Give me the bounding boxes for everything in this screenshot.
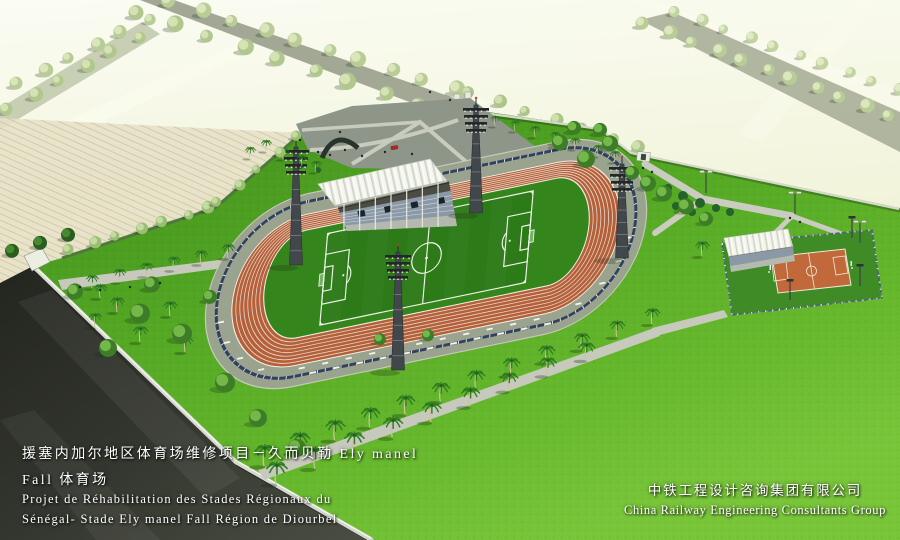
light-bar: [466, 129, 486, 132]
person: [651, 171, 653, 173]
lamp: [388, 271, 390, 273]
tree: [104, 46, 112, 54]
palm-shadow: [242, 158, 250, 160]
light-bar: [388, 276, 408, 279]
lamp: [386, 257, 388, 259]
palm-crown: [146, 264, 148, 266]
tree: [375, 334, 382, 341]
tree: [714, 44, 722, 52]
tree: [63, 245, 70, 252]
palm-crown: [616, 322, 619, 325]
palm-crown: [495, 117, 497, 119]
tree: [813, 82, 820, 89]
palm-shadow: [378, 437, 393, 441]
tree: [216, 374, 228, 386]
tree: [626, 167, 634, 175]
palm-crown: [508, 374, 511, 377]
tree: [416, 74, 424, 82]
palm-crown: [227, 245, 229, 247]
palm-crown: [119, 270, 121, 272]
palm-shadow: [508, 132, 516, 134]
palm-crown: [581, 334, 584, 337]
tree: [816, 58, 824, 66]
palm-crown: [266, 141, 268, 143]
lamp: [403, 257, 405, 259]
lamp: [470, 117, 472, 119]
tree: [137, 223, 144, 230]
tree: [30, 88, 39, 97]
basketball-hoop: [768, 271, 770, 273]
person: [642, 167, 644, 169]
palm-shadow: [258, 151, 266, 153]
tree: [351, 52, 361, 62]
company-name-zh: 中铁工程设计咨询集团有限公司: [600, 479, 900, 499]
tree: [270, 52, 279, 61]
tree: [311, 65, 319, 73]
light-bar: [463, 108, 489, 111]
palm-shadow: [90, 298, 101, 301]
lamp: [467, 131, 469, 133]
tree: [632, 141, 640, 149]
palm-crown: [585, 344, 588, 347]
tree: [578, 151, 589, 162]
tower-shadow: [594, 258, 624, 264]
lamp: [621, 183, 623, 185]
tree: [131, 305, 143, 317]
palm-crown: [302, 156, 304, 158]
tree: [62, 229, 70, 237]
lamp: [295, 173, 297, 175]
palm-crown: [547, 359, 550, 362]
goal: [529, 230, 534, 243]
lamp: [402, 271, 404, 273]
palm-crown: [651, 310, 654, 313]
lamp: [401, 278, 403, 280]
lamp: [392, 257, 394, 259]
tree: [114, 26, 122, 34]
lamp: [303, 173, 305, 175]
lamp: [397, 278, 399, 280]
tree: [664, 26, 673, 35]
lamp: [306, 152, 308, 154]
lamp: [611, 176, 613, 178]
beacon: [397, 244, 399, 246]
palm-shadow: [160, 316, 171, 319]
lamp: [480, 124, 482, 126]
lamp: [613, 190, 615, 192]
tree: [235, 180, 242, 187]
lamp: [286, 166, 288, 168]
palm-crown: [440, 384, 443, 387]
palm-shadow: [641, 324, 653, 327]
palm-crown: [169, 302, 171, 304]
lamp-head: [708, 171, 713, 173]
person: [159, 282, 161, 284]
lamp: [402, 264, 404, 266]
lamp: [610, 169, 612, 171]
lamp: [393, 278, 395, 280]
lamp: [629, 190, 631, 192]
tree: [92, 38, 100, 46]
tree: [747, 32, 754, 39]
lamp: [392, 264, 394, 266]
lamp: [406, 271, 408, 273]
palm-crown: [469, 389, 472, 392]
lamp-head: [789, 192, 794, 194]
palm-crown: [598, 146, 600, 148]
tree: [53, 76, 60, 83]
lamp: [397, 264, 399, 266]
tree: [494, 95, 502, 103]
lamp: [471, 131, 473, 133]
lamp: [465, 117, 467, 119]
person: [79, 286, 81, 288]
tree: [340, 74, 350, 84]
palm-shadow: [174, 352, 186, 355]
palm-shadow: [488, 127, 496, 129]
shrub: [695, 198, 705, 208]
palm-crown: [200, 251, 202, 253]
lamp: [616, 169, 618, 171]
light-bar: [387, 269, 409, 272]
tree: [568, 122, 576, 130]
palm-shadow: [534, 375, 548, 379]
tree: [145, 15, 152, 22]
tree: [135, 33, 142, 40]
palm-shadow: [137, 276, 147, 279]
person: [429, 91, 431, 93]
palm-shadow: [607, 162, 615, 164]
person: [449, 99, 451, 101]
goal: [319, 273, 324, 286]
palm-shadow: [570, 350, 583, 353]
tree: [100, 340, 111, 351]
tree: [129, 6, 138, 15]
tree: [381, 87, 389, 95]
palm-shadow: [83, 288, 93, 291]
lamp: [407, 264, 409, 266]
lamp: [466, 124, 468, 126]
lamp: [616, 176, 618, 178]
lamp: [290, 152, 292, 154]
palm-crown: [391, 419, 394, 422]
lamp: [285, 159, 287, 161]
tree: [833, 92, 840, 99]
tree: [764, 65, 771, 72]
person: [384, 151, 386, 153]
palm-crown: [139, 328, 142, 331]
palm-crown: [430, 404, 433, 407]
tree: [636, 18, 644, 26]
tree: [288, 34, 297, 43]
palm-crown: [510, 359, 513, 362]
palm-crown: [701, 242, 703, 244]
lamp: [389, 278, 391, 280]
tree: [861, 99, 870, 108]
lamp: [485, 117, 487, 119]
tree: [239, 40, 249, 50]
palm-crown: [94, 314, 96, 316]
light-bar: [386, 262, 410, 265]
light-bar: [612, 188, 632, 191]
lamp: [397, 257, 399, 259]
palm-shadow: [164, 270, 174, 273]
tree: [212, 198, 218, 204]
lamp: [630, 183, 632, 185]
tree: [68, 285, 78, 295]
light-bar: [465, 122, 487, 125]
palm-crown: [250, 148, 252, 150]
lamp: [480, 117, 482, 119]
tree: [111, 232, 117, 238]
tree: [846, 68, 852, 74]
tree: [734, 54, 742, 62]
company-name-en: China Railway Engineering Consultants Gr…: [600, 503, 900, 518]
person: [799, 221, 801, 223]
lamp: [405, 278, 407, 280]
tree: [252, 165, 257, 170]
palm-crown: [535, 127, 537, 129]
person: [361, 155, 363, 157]
tree: [450, 82, 460, 92]
palm-crown: [475, 372, 478, 375]
caption-line-fr1: Projet de Réhabilitation des Stades Régi…: [22, 492, 418, 507]
tree: [40, 64, 49, 73]
lamp: [393, 271, 395, 273]
person: [299, 139, 301, 141]
project-caption: 援塞内加尔地区体育场维修项目－久而贝勒 Ely manel Fall 体育场 P…: [22, 443, 418, 532]
tree: [679, 200, 689, 210]
stadium-aerial-rendering: 援塞内加尔地区体育场维修项目－久而贝勒 Ely manel Fall 体育场 P…: [0, 0, 900, 540]
lamp: [479, 131, 481, 133]
tree: [551, 114, 559, 122]
lamp: [295, 159, 297, 161]
lamp: [621, 169, 623, 171]
lamp: [295, 152, 297, 154]
palm-crown: [515, 122, 517, 124]
palm-shadow: [495, 391, 509, 395]
palm-crown: [116, 298, 118, 300]
tree: [783, 72, 792, 81]
lamp-head: [700, 171, 705, 173]
lamp: [291, 166, 293, 168]
lamp: [475, 124, 477, 126]
palm-shadow: [191, 264, 201, 267]
lamp-head: [854, 221, 859, 223]
tree: [553, 136, 563, 146]
tree: [719, 25, 725, 31]
tree: [275, 147, 282, 154]
person: [129, 286, 131, 288]
palm-shadow: [534, 363, 547, 366]
lamp: [475, 117, 477, 119]
tree: [423, 330, 430, 337]
tree: [686, 37, 693, 44]
lamp: [470, 110, 472, 112]
tree: [184, 211, 190, 217]
palm-shadow: [308, 172, 316, 174]
palm-shadow: [110, 282, 120, 285]
tree: [291, 131, 297, 137]
person: [339, 131, 341, 133]
palm-shadow: [605, 337, 617, 340]
tree: [0, 104, 8, 112]
person: [317, 151, 319, 153]
lamp: [299, 173, 301, 175]
palm-crown: [369, 409, 372, 412]
person: [411, 153, 413, 155]
lamp: [625, 190, 627, 192]
light-bar: [285, 164, 307, 167]
palm-shadow: [294, 166, 302, 168]
tree: [10, 78, 18, 86]
light-bar: [385, 255, 411, 258]
lamp: [397, 271, 399, 273]
tree: [700, 213, 708, 221]
basketball-hoop: [851, 267, 853, 269]
palm-shadow: [692, 256, 703, 259]
caption-line-fr2: Sénégal- Stade Ely manel Fall Région de …: [22, 512, 418, 527]
beacon: [475, 97, 477, 99]
lamp: [387, 264, 389, 266]
tree: [168, 17, 178, 27]
person: [99, 289, 101, 291]
palm-shadow: [574, 360, 587, 363]
person: [329, 154, 331, 156]
tree: [325, 45, 332, 52]
tree: [594, 124, 602, 132]
lamp: [484, 124, 486, 126]
tree: [669, 7, 676, 14]
tree: [260, 23, 269, 32]
tree: [226, 16, 233, 23]
tree: [883, 111, 890, 118]
palm-shadow: [107, 312, 118, 315]
palm-crown: [298, 434, 301, 437]
lamp: [408, 257, 410, 259]
lamp: [481, 110, 483, 112]
tree: [250, 410, 261, 421]
lamp: [626, 183, 628, 185]
tree: [520, 107, 526, 113]
tower-shadow: [268, 265, 298, 271]
palm-shadow: [129, 342, 141, 345]
lamp-head: [797, 192, 802, 194]
lamp: [464, 110, 466, 112]
tree: [867, 77, 873, 83]
palm-crown: [404, 397, 407, 400]
tree: [90, 237, 97, 244]
palm-shadow: [85, 327, 96, 330]
light-bar: [286, 171, 306, 174]
lamp: [471, 124, 473, 126]
shrub: [712, 204, 720, 212]
tree: [797, 51, 803, 57]
shrub: [726, 208, 734, 216]
tree: [6, 245, 14, 253]
palm-crown: [575, 139, 577, 141]
palm-crown: [615, 152, 617, 154]
lamp: [612, 183, 614, 185]
lamp: [290, 159, 292, 161]
lamp: [301, 152, 303, 154]
tree: [768, 41, 775, 48]
tree: [697, 15, 704, 22]
lamp: [621, 190, 623, 192]
tree: [63, 53, 70, 60]
lamp: [617, 190, 619, 192]
lamp: [304, 166, 306, 168]
lamp: [291, 173, 293, 175]
lamp: [617, 183, 619, 185]
tree: [388, 64, 396, 72]
lamp: [483, 131, 485, 133]
tower-shadow: [448, 213, 478, 219]
palm-crown: [334, 422, 337, 425]
palm-crown: [99, 285, 101, 287]
tree: [204, 291, 212, 299]
beacon: [621, 156, 623, 158]
lamp-head: [862, 221, 867, 223]
light-bar: [611, 181, 633, 184]
palm-shadow: [275, 159, 283, 161]
person: [344, 149, 346, 151]
lamp: [287, 173, 289, 175]
tree: [34, 237, 42, 245]
tree: [145, 278, 155, 288]
company-caption: 中铁工程设计咨询集团有限公司 China Railway Engineering…: [600, 479, 900, 518]
palm-shadow: [218, 258, 229, 261]
tree: [201, 31, 209, 39]
lamp: [475, 110, 477, 112]
palm-shadow: [417, 422, 432, 426]
light-bar: [464, 115, 488, 118]
caption-line-zh2: Fall 体育场: [22, 469, 418, 489]
tree: [82, 60, 90, 68]
palm-crown: [546, 347, 549, 350]
palm-crown: [173, 258, 175, 260]
tree: [197, 4, 206, 13]
palm-shadow: [456, 406, 471, 410]
caption-line-zh1: 援塞内加尔地区体育场维修项目－久而贝勒 Ely manel: [22, 443, 418, 463]
palm-shadow: [567, 149, 575, 151]
lamp: [475, 131, 477, 133]
palm-shadow: [356, 427, 371, 431]
tree: [173, 325, 185, 337]
tree: [156, 217, 163, 224]
palm-crown: [316, 162, 318, 164]
tree: [603, 137, 613, 147]
palm-crown: [353, 434, 356, 437]
tree: [641, 177, 651, 187]
palm-crown: [555, 133, 557, 135]
palm-shadow: [527, 137, 535, 139]
tower-shadow: [370, 370, 400, 376]
person: [789, 217, 791, 219]
tree: [657, 187, 667, 197]
lamp: [486, 110, 488, 112]
palm-crown: [92, 276, 94, 278]
